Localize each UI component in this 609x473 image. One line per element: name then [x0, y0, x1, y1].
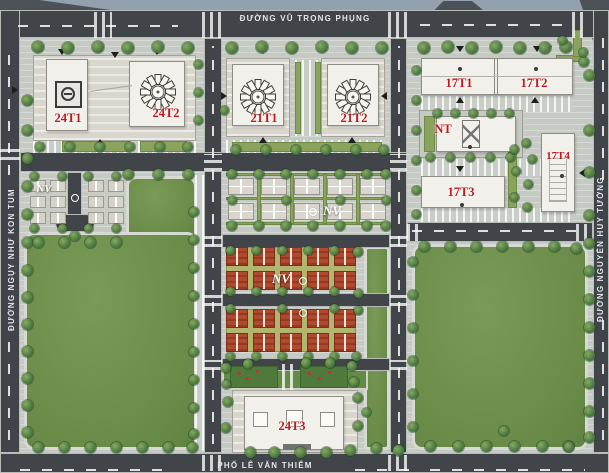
flower-dot [328, 371, 331, 374]
tree-icon [379, 145, 389, 155]
arrow-marker-icon [221, 92, 227, 100]
tree-icon [354, 289, 363, 298]
tree-icon [227, 221, 237, 231]
garden-path [282, 364, 298, 390]
nt-core-x-icon [462, 120, 480, 148]
tree-icon [558, 36, 567, 45]
tree-icon [223, 397, 233, 407]
tree-icon [295, 447, 306, 458]
tree-icon [221, 423, 231, 433]
tree-icon [189, 263, 199, 273]
rowhouse-unit [253, 333, 275, 352]
tree-icon [584, 378, 595, 389]
crosswalk [204, 295, 222, 306]
tree-icon [584, 167, 595, 178]
tree-icon [194, 60, 203, 69]
tree-icon [584, 350, 595, 361]
villa-unit [327, 178, 353, 195]
crosswalk [204, 360, 222, 370]
tree-icon [335, 169, 345, 179]
tree-icon [499, 426, 509, 436]
tree-icon [316, 41, 328, 53]
tree-icon [182, 42, 194, 54]
tree-icon [524, 180, 533, 189]
road-cross-b [407, 222, 593, 242]
tree-icon [382, 196, 391, 205]
tree-icon [469, 109, 478, 118]
tree-icon [584, 432, 595, 443]
tree-icon [22, 292, 33, 303]
tree-icon [412, 96, 421, 105]
tree-icon [84, 224, 93, 233]
lowrise-unit [108, 196, 124, 208]
crosswalk [94, 12, 112, 38]
tree-icon [408, 356, 418, 366]
arrow-marker-icon [111, 52, 119, 58]
rowhouse-unit [253, 309, 275, 328]
tree-icon [22, 265, 33, 276]
label-nv-west: NV [32, 184, 56, 195]
tree-icon [22, 373, 33, 384]
arrow-marker-icon [456, 166, 464, 172]
tree-icon [579, 57, 589, 67]
tree-icon [245, 447, 256, 458]
tree-icon [254, 221, 264, 231]
tree-icon [189, 375, 199, 385]
vent-dot [468, 145, 472, 149]
tree-icon [220, 106, 229, 115]
hedge [295, 62, 301, 134]
tree-icon [345, 445, 356, 456]
tree-icon [33, 237, 44, 248]
tree-icon [261, 145, 271, 155]
tree-icon [571, 243, 582, 254]
tree-icon [584, 125, 595, 136]
road-centerline [420, 24, 570, 26]
label-21t2: 21T2 [330, 112, 378, 125]
tree-icon [487, 109, 496, 118]
tree-icon [278, 352, 287, 361]
tree-icon [451, 109, 460, 118]
tree-icon [22, 237, 33, 248]
tree-icon [352, 352, 361, 361]
tree-icon [252, 287, 261, 296]
site-plan-map: ĐƯỜNG VŨ TRỌNG PHỤNG PHỐ LÊ VĂN THIÊM ĐƯ… [0, 0, 609, 473]
tree-icon [347, 361, 357, 371]
tree-icon [32, 41, 44, 53]
tree-icon [376, 42, 388, 54]
crosswalk [572, 12, 588, 38]
tree-icon [584, 266, 595, 277]
tree-icon [231, 145, 241, 155]
villa-unit [228, 203, 254, 220]
tree-icon [446, 153, 455, 162]
tree-icon [362, 169, 372, 179]
tree-icon [528, 155, 537, 164]
label-24t2: 24T2 [138, 107, 194, 120]
hedge [315, 62, 321, 134]
tree-icon [84, 172, 93, 181]
tree-icon [252, 246, 261, 255]
tree-icon [512, 167, 521, 176]
flower-dot [246, 377, 249, 380]
tree-icon [539, 42, 551, 54]
street-label-right: ĐƯỜNG NGUYỄN HUY TƯỞNG [596, 182, 605, 322]
vent-dot [560, 174, 564, 178]
tree-icon [381, 221, 391, 231]
crosswalk [388, 455, 408, 471]
tree-icon [304, 287, 313, 296]
road-centerline [602, 30, 604, 180]
flower-dot [256, 370, 259, 373]
tree-icon [22, 181, 33, 192]
tree-icon [278, 287, 287, 296]
tree-icon [466, 153, 475, 162]
villa-unit [294, 178, 320, 195]
flower-dot [308, 372, 311, 375]
tree-icon [183, 142, 193, 152]
tree-icon [85, 442, 96, 453]
tree-icon [85, 237, 96, 248]
tree-icon [254, 169, 264, 179]
tree-icon [408, 422, 418, 432]
tree-icon [228, 196, 237, 205]
lowrise-unit [50, 212, 66, 224]
tree-icon [152, 41, 164, 53]
tree-icon [584, 322, 595, 333]
tree-icon [189, 403, 199, 413]
tree-icon [486, 153, 495, 162]
tree-icon [353, 421, 363, 431]
tree-icon [111, 442, 122, 453]
tree-icon [393, 445, 404, 456]
tree-icon [59, 237, 70, 248]
tree-icon [252, 352, 261, 361]
tree-icon [514, 42, 526, 54]
tree-icon [189, 291, 199, 301]
tree-icon [62, 42, 74, 54]
crosswalk [407, 224, 419, 241]
lowrise-unit [30, 196, 46, 208]
tree-icon [471, 241, 482, 252]
vent-dot [534, 67, 538, 71]
tree-icon [584, 70, 595, 81]
tree-icon [584, 238, 595, 249]
tree-icon [291, 145, 301, 155]
lawn-west-upper [126, 176, 197, 238]
tree-icon [330, 304, 339, 313]
crosswalk [204, 236, 222, 247]
garden-plot-east [300, 366, 348, 388]
tree-icon [226, 246, 235, 255]
crosswalk [390, 236, 407, 247]
tree-icon [189, 207, 199, 217]
villa-unit [261, 178, 287, 195]
tree-icon [408, 389, 418, 399]
tree-icon [584, 294, 595, 305]
tree-icon [330, 287, 339, 296]
tree-icon [189, 235, 199, 245]
rowhouse-unit [280, 333, 302, 352]
tree-icon [510, 145, 519, 154]
tree-icon [189, 347, 199, 357]
tree-icon [33, 442, 44, 453]
tree-icon [70, 231, 80, 241]
tree-icon [349, 377, 359, 387]
tree-icon [278, 304, 287, 313]
tree-icon [354, 306, 363, 315]
road-centerline [602, 320, 604, 440]
tree-icon [22, 209, 33, 220]
tree-icon [22, 319, 33, 330]
arrow-marker-icon [381, 92, 387, 100]
garden-plot-west [230, 366, 278, 388]
villa-unit [228, 178, 254, 195]
tree-icon [453, 441, 464, 452]
tree-icon [321, 447, 332, 458]
tree-icon [111, 237, 122, 248]
tree-icon [505, 109, 514, 118]
rowhouse-unit [307, 333, 329, 352]
label-nv-rowhouses: NV [266, 272, 296, 285]
tree-icon [221, 363, 231, 373]
tree-icon [579, 48, 588, 57]
lawn-east [412, 244, 588, 450]
circle-mark-icon [71, 194, 79, 202]
label-nt: NT [430, 123, 456, 136]
tree-icon [412, 186, 421, 195]
core-square [320, 412, 335, 427]
tree-icon [408, 323, 418, 333]
arrow-marker-icon [531, 97, 539, 103]
tree-icon [442, 41, 454, 53]
tree-icon [137, 442, 148, 453]
stair-core-icon [549, 158, 567, 202]
lowrise-unit [108, 180, 124, 192]
tree-icon [35, 142, 45, 152]
tree-icon [426, 153, 435, 162]
tree-icon [183, 169, 194, 180]
tree-icon [408, 290, 418, 300]
flower-dot [318, 377, 321, 380]
tree-icon [65, 142, 75, 152]
tree-icon [419, 241, 430, 252]
arrow-marker-icon [259, 137, 267, 143]
tree-icon [30, 172, 39, 181]
road-centerline [20, 469, 170, 471]
tree-icon [226, 287, 235, 296]
tree-icon [584, 406, 595, 417]
tree-icon [564, 442, 574, 452]
street-label-bottom: PHỐ LÊ VĂN THIÊM [180, 461, 350, 470]
tree-icon [112, 224, 121, 233]
tree-icon [189, 319, 199, 329]
tree-icon [30, 224, 39, 233]
arrow-marker-icon [12, 86, 18, 94]
tree-icon [330, 246, 339, 255]
tree-icon [335, 221, 345, 231]
tree-icon [353, 393, 363, 403]
label-nv-villas: NV [318, 204, 346, 217]
tree-icon [523, 203, 532, 212]
tree-icon [226, 304, 235, 313]
tree-icon [59, 442, 70, 453]
tree-icon [308, 169, 318, 179]
circle-mark-icon [299, 309, 307, 317]
tree-icon [22, 400, 33, 411]
tree-icon [353, 247, 363, 257]
tree-icon [418, 42, 430, 54]
tree-icon [112, 172, 121, 181]
tree-icon [194, 88, 203, 97]
tree-icon [308, 221, 318, 231]
rowhouse-unit [307, 309, 329, 328]
tree-icon [22, 125, 33, 136]
tree-icon [301, 358, 311, 368]
flower-dot [238, 372, 241, 375]
tree-icon [282, 196, 291, 205]
tree-icon [95, 142, 105, 152]
tree-icon [466, 42, 478, 54]
road-centerline [430, 469, 585, 471]
arrow-marker-icon [456, 97, 464, 103]
crosswalk [390, 360, 407, 370]
tree-icon [256, 41, 268, 53]
tree-icon [408, 257, 418, 267]
tree-icon [92, 41, 104, 53]
tree-icon [549, 241, 560, 252]
tree-icon [22, 95, 33, 106]
tree-icon [433, 109, 442, 118]
tree-icon [123, 169, 134, 180]
lowrise-unit [50, 196, 66, 208]
tree-icon [125, 142, 135, 152]
tree-icon [243, 359, 253, 369]
rowhouse-unit [226, 333, 248, 352]
lowrise-unit [88, 212, 104, 224]
label-24t1: 24T1 [46, 112, 90, 125]
lowrise-unit [88, 180, 104, 192]
lawn-mid-strip [364, 246, 390, 450]
label-17t1: 17T1 [435, 77, 483, 90]
crosswalk [0, 146, 20, 160]
lowrise-unit [108, 212, 124, 224]
tree-icon [510, 193, 519, 202]
tree-icon [537, 441, 548, 452]
tree-icon [523, 241, 534, 252]
arrow-marker-icon [348, 137, 356, 143]
tree-icon [325, 358, 335, 368]
tree-icon [281, 221, 291, 231]
tree-icon [163, 442, 174, 453]
tree-icon [226, 352, 235, 361]
tree-icon [227, 169, 237, 179]
label-17t4: 17T4 [542, 151, 574, 162]
street-label-left: ĐƯỜNG NGỤY NHƯ KON TUM [7, 185, 16, 335]
tree-icon [58, 172, 67, 181]
tree-icon [412, 156, 421, 165]
rowhouse-unit [334, 333, 356, 352]
tree-icon [362, 408, 371, 417]
tree-icon [346, 42, 358, 54]
lawn-west [24, 232, 197, 450]
hedge [226, 197, 386, 200]
tree-icon [584, 210, 595, 221]
vent-dot [460, 203, 464, 207]
tree-icon [22, 427, 33, 438]
circle-mark-icon [309, 208, 317, 216]
tree-icon [22, 153, 33, 164]
villa-unit [360, 178, 386, 195]
tree-icon [22, 346, 33, 357]
tree-icon [412, 210, 421, 219]
tree-icon [222, 380, 231, 389]
villa-unit [360, 203, 386, 220]
lowrise-unit [88, 196, 104, 208]
tree-icon [58, 224, 67, 233]
tree-icon [490, 41, 502, 53]
tree-icon [445, 241, 456, 252]
tree-icon [304, 246, 313, 255]
tree-icon [155, 142, 165, 152]
crosswalk [204, 154, 222, 171]
helipad-bar-icon [64, 93, 72, 95]
crosswalk [390, 295, 407, 306]
tree-icon [522, 139, 531, 148]
tree-icon [425, 441, 436, 452]
tree-icon [278, 246, 287, 255]
tree-icon [321, 145, 331, 155]
tree-icon [362, 221, 372, 231]
circle-mark-icon [299, 277, 307, 285]
tree-icon [189, 429, 199, 439]
tree-icon [412, 66, 421, 75]
tree-icon [371, 443, 382, 454]
tree-icon [509, 441, 520, 452]
label-24t3: 24T3 [264, 420, 320, 433]
tree-icon [122, 42, 134, 54]
road-centerline [412, 230, 582, 232]
tree-icon [187, 442, 198, 453]
villa-unit [261, 203, 287, 220]
road-centerline [8, 340, 10, 440]
tree-icon [351, 145, 361, 155]
tree-icon [412, 126, 421, 135]
label-21t1: 21T1 [240, 112, 288, 125]
tree-icon [506, 153, 515, 162]
tree-icon [381, 169, 391, 179]
crosswalk [390, 154, 407, 171]
tree-icon [497, 241, 508, 252]
street-label-top: ĐƯỜNG VŨ TRỌNG PHỤNG [210, 14, 400, 23]
tree-icon [281, 169, 291, 179]
tree-icon [481, 441, 492, 452]
label-17t3: 17T3 [435, 186, 487, 199]
tree-icon [286, 42, 298, 54]
arrow-marker-icon [456, 46, 464, 52]
label-17t2: 17T2 [510, 77, 558, 90]
vent-dot [458, 67, 462, 71]
tree-icon [269, 447, 280, 458]
tree-icon [194, 116, 203, 125]
tree-icon [153, 169, 164, 180]
tree-icon [226, 42, 238, 54]
